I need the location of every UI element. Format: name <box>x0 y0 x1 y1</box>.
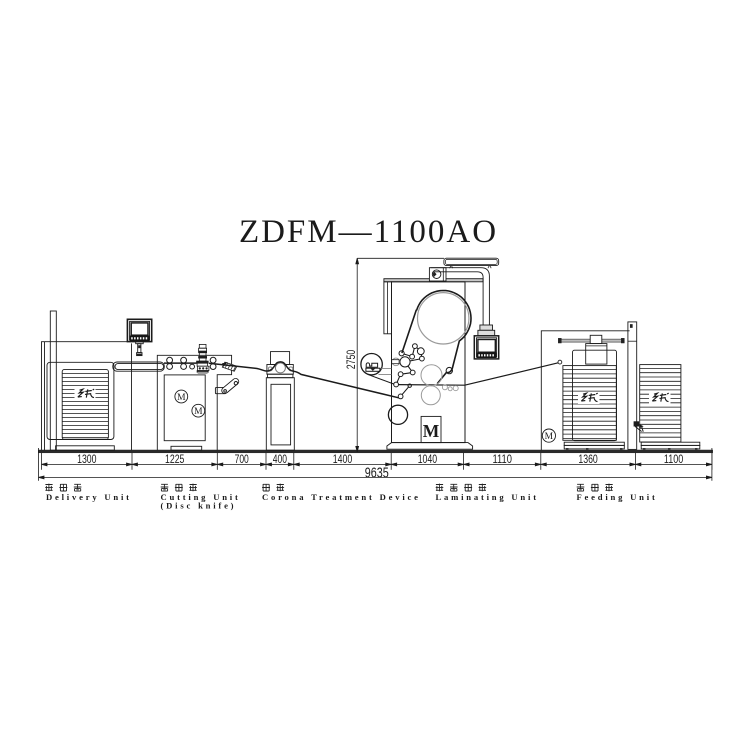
svg-text:M: M <box>194 407 203 417</box>
svg-text:Laminating Unit: Laminating Unit <box>436 492 539 502</box>
svg-text:1225: 1225 <box>165 452 185 466</box>
svg-text:2750: 2750 <box>344 350 358 370</box>
svg-text:1040: 1040 <box>418 452 438 466</box>
svg-text:Corona Treatment Device: Corona Treatment Device <box>262 492 421 502</box>
svg-text:M: M <box>545 432 554 442</box>
svg-text:400: 400 <box>273 452 287 466</box>
svg-text:M: M <box>177 393 186 403</box>
svg-text:ZDFM—1100AO: ZDFM—1100AO <box>239 214 498 250</box>
svg-text:1360: 1360 <box>578 452 598 466</box>
svg-text:1400: 1400 <box>333 452 353 466</box>
svg-text:1100: 1100 <box>664 452 684 466</box>
svg-text:Delivery Unit: Delivery Unit <box>46 492 132 502</box>
svg-text:9635: 9635 <box>365 466 389 482</box>
svg-text:1110: 1110 <box>493 452 513 466</box>
svg-text:1300: 1300 <box>77 452 97 466</box>
svg-text:Feeding Unit: Feeding Unit <box>577 492 658 502</box>
svg-text:700: 700 <box>235 452 249 466</box>
svg-text:(Disc knife): (Disc knife) <box>161 500 237 510</box>
svg-text:M: M <box>423 421 440 441</box>
